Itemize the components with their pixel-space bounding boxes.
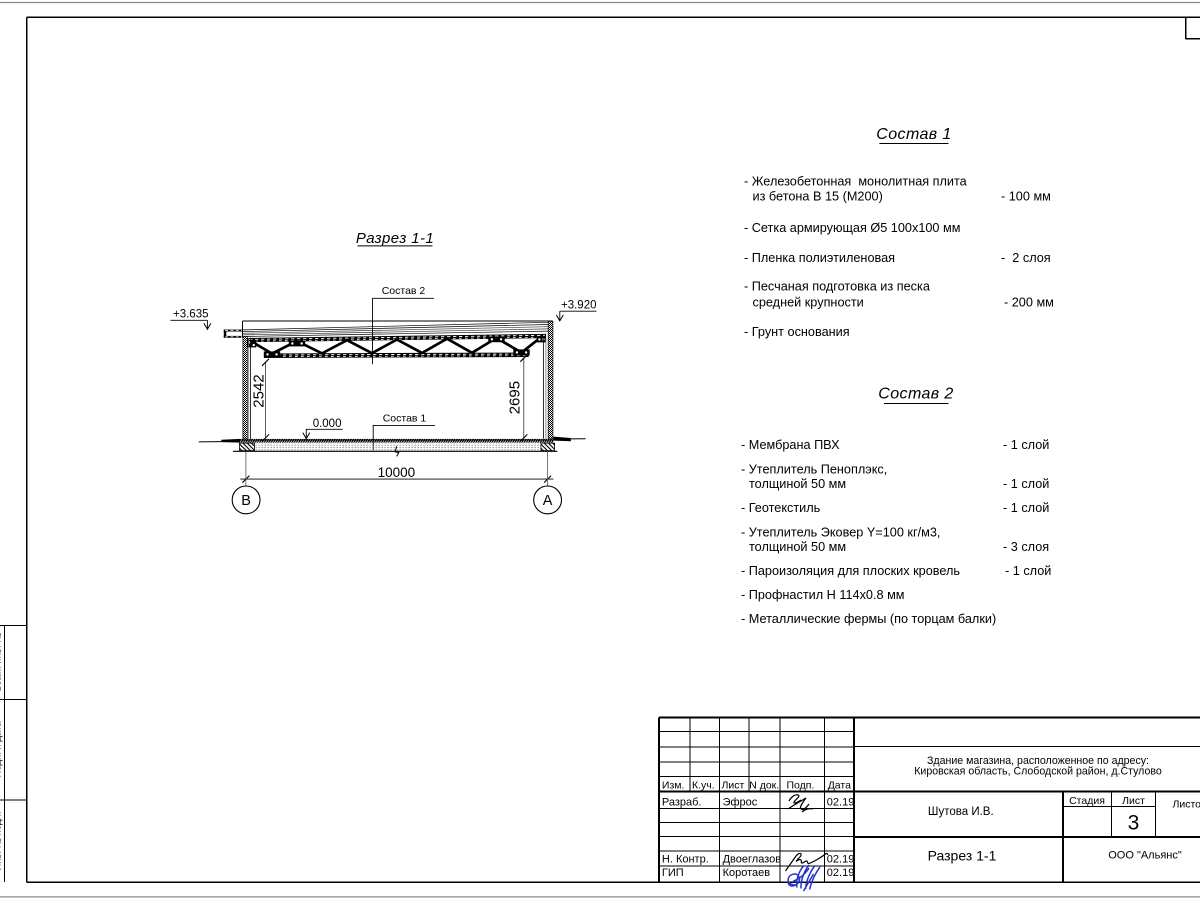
svg-text:- Железобетонная монолитная п: - Железобетонная монолитная плита [744,175,968,189]
svg-text:2695: 2695 [507,381,524,414]
svg-text:- Пленка полиэтиленовая: - Пленка полиэтиленовая [744,251,895,265]
svg-text:- Песчаная подготовка из песка: - Песчаная подготовка из песка [744,280,931,294]
svg-text:02.19: 02.19 [827,853,855,865]
svg-text:+3.635: +3.635 [173,309,209,321]
svg-text:Подп.: Подп. [787,780,815,792]
svg-text:Разрез 1-1: Разрез 1-1 [356,230,434,247]
svg-text:N док.: N док. [749,780,779,792]
svg-text:- 1 слой: - 1 слой [1003,477,1049,491]
svg-text:В: В [241,493,251,509]
svg-text:- 1 слой: - 1 слой [1003,438,1049,452]
svg-text:3: 3 [1128,812,1140,835]
svg-text:из бетона В 15 (М200): из бетона В 15 (М200) [753,189,883,203]
svg-text:Листов: Листов [1172,798,1200,810]
svg-text:Инв. № подл.: Инв. № подл. [0,811,4,870]
svg-text:К.уч.: К.уч. [692,780,715,792]
svg-text:толщиной 50 мм: толщиной 50 мм [749,477,846,491]
svg-text:- Геотекстиль: - Геотекстиль [741,501,821,515]
svg-text:Дата: Дата [828,780,851,792]
svg-text:Кировская область, Слободской: Кировская область, Слободской район, д.С… [914,766,1162,778]
svg-text:0.000: 0.000 [313,418,342,430]
svg-text:ГИП: ГИП [662,867,684,879]
svg-text:- Мембрана ПВХ: - Мембрана ПВХ [741,438,840,452]
svg-text:Разраб.: Разраб. [662,796,702,808]
svg-text:Взам. инв. №: Взам. инв. № [0,633,4,692]
svg-text:- 100 мм: - 100 мм [1001,189,1051,203]
svg-text:Состав 2: Состав 2 [878,386,953,403]
svg-text:- Сетка армирующая Ø5 100х100: - Сетка армирующая Ø5 100х100 мм [744,221,960,235]
svg-text:Шутова И.В.: Шутова И.В. [928,806,994,818]
svg-text:- 2 слоя: - 2 слоя [1001,251,1051,265]
svg-text:- Профнастил Н 114х0.8 мм: - Профнастил Н 114х0.8 мм [741,588,905,602]
svg-text:Подп. и дата: Подп. и дата [0,721,4,778]
svg-text:А: А [543,493,553,509]
svg-text:Эфрос: Эфрос [723,796,758,808]
svg-text:ООО "Альянс": ООО "Альянс" [1108,850,1182,862]
svg-text:10000: 10000 [378,465,416,480]
svg-text:Состав 1: Состав 1 [383,412,427,424]
svg-text:- 3 слоя: - 3 слоя [1003,540,1049,554]
svg-text:Н. Контр.: Н. Контр. [662,853,709,865]
svg-text:Состав 2: Состав 2 [382,285,426,297]
svg-text:Лист: Лист [1122,795,1145,807]
svg-text:- Утеплитель Пеноплэкс,: - Утеплитель Пеноплэкс, [741,462,887,476]
svg-text:+3.920: +3.920 [561,300,597,312]
svg-text:толщиной 50 мм: толщиной 50 мм [749,540,846,554]
svg-text:Стадия: Стадия [1069,795,1105,807]
svg-text:Разрез 1-1: Разрез 1-1 [928,847,997,863]
svg-text:- Пароизоляция для плоских кро: - Пароизоляция для плоских кровель [741,564,960,578]
svg-text:- Утеплитель Эковер Y=100 кг/м: - Утеплитель Эковер Y=100 кг/м3, [741,525,940,539]
svg-text:Коротаев: Коротаев [723,867,771,879]
svg-text:Двоеглазов: Двоеглазов [723,853,782,865]
svg-text:- 200 мм: - 200 мм [1004,296,1054,310]
svg-text:Состав 1: Состав 1 [876,126,951,143]
svg-text:2542: 2542 [251,374,268,407]
svg-text:- Металлические фермы (по торц: - Металлические фермы (по торцам балки) [741,612,996,626]
svg-text:средней крупности: средней крупности [753,296,864,310]
svg-text:02.19: 02.19 [827,867,855,879]
svg-text:- 1 слой: - 1 слой [1005,564,1051,578]
svg-text:02.19: 02.19 [827,796,855,808]
svg-text:Лист: Лист [722,780,745,792]
svg-text:- 1 слой: - 1 слой [1003,501,1049,515]
svg-text:Изм.: Изм. [662,780,685,792]
svg-text:- Грунт основания: - Грунт основания [744,325,850,339]
